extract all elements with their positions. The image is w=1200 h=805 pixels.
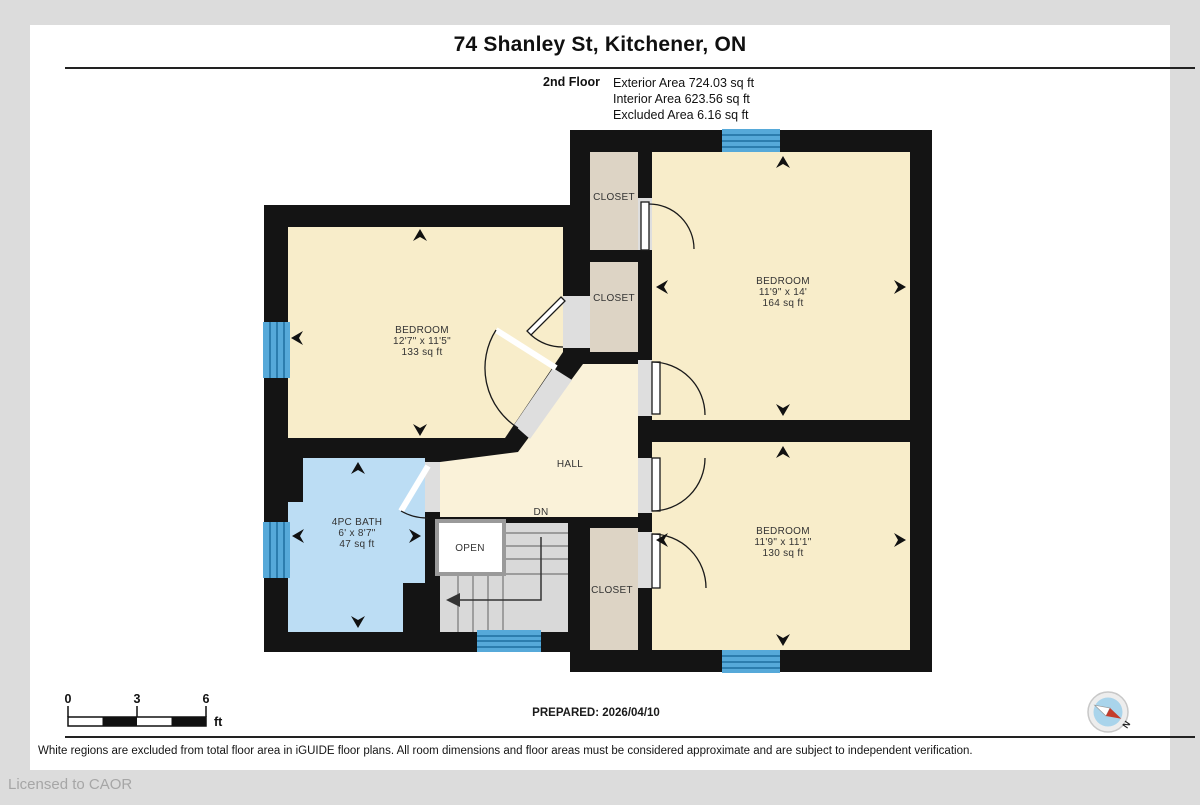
bath-dims: 6' x 8'7" <box>338 528 375 539</box>
closet-middle-label: CLOSET <box>593 293 635 304</box>
compass-north-label: N <box>1120 719 1132 730</box>
closet-bottom-label: CLOSET <box>591 585 633 596</box>
scale-tick-6: 6 <box>203 692 210 706</box>
bath-area: 47 sq ft <box>339 539 374 550</box>
floorplan-drawing: BEDROOM 12'7" x 11'5" 133 sq ft BEDROOM … <box>0 0 1200 805</box>
window-bedroom-left <box>263 322 290 378</box>
bedroom-top-right-area: 164 sq ft <box>762 298 803 309</box>
window-bath <box>263 522 290 578</box>
stairs-down-label: DN <box>533 507 548 518</box>
scale-unit-label: ft <box>214 715 223 729</box>
bedroom-top-right-name: BEDROOM <box>756 276 810 287</box>
window-stairwell <box>477 630 541 652</box>
window-bedroom-bottom-right <box>722 650 780 673</box>
window-bedroom-top-right <box>722 129 780 152</box>
bedroom-left-dims: 12'7" x 11'5" <box>393 336 451 347</box>
bath-name: 4PC BATH <box>332 517 383 528</box>
bedroom-bottom-right-area: 130 sq ft <box>762 548 803 559</box>
scale-bar: 0 3 6 ft <box>65 692 224 729</box>
room-closet-middle <box>590 262 638 352</box>
scale-tick-0: 0 <box>65 692 72 706</box>
bedroom-left-name: BEDROOM <box>395 325 449 336</box>
bedroom-bottom-right-dims: 11'9" x 11'1" <box>754 537 811 548</box>
closet-top-label: CLOSET <box>593 192 635 203</box>
compass-icon: N <box>1088 692 1132 732</box>
bedroom-top-right-dims: 11'9" x 14' <box>759 287 807 298</box>
hall-label: HALL <box>557 459 583 470</box>
license-watermark: Licensed to CAOR <box>8 776 132 793</box>
bedroom-bottom-right-name: BEDROOM <box>756 526 810 537</box>
stairs-open-label: OPEN <box>455 543 485 554</box>
scale-tick-3: 3 <box>134 692 141 706</box>
bedroom-left-area: 133 sq ft <box>401 347 442 358</box>
